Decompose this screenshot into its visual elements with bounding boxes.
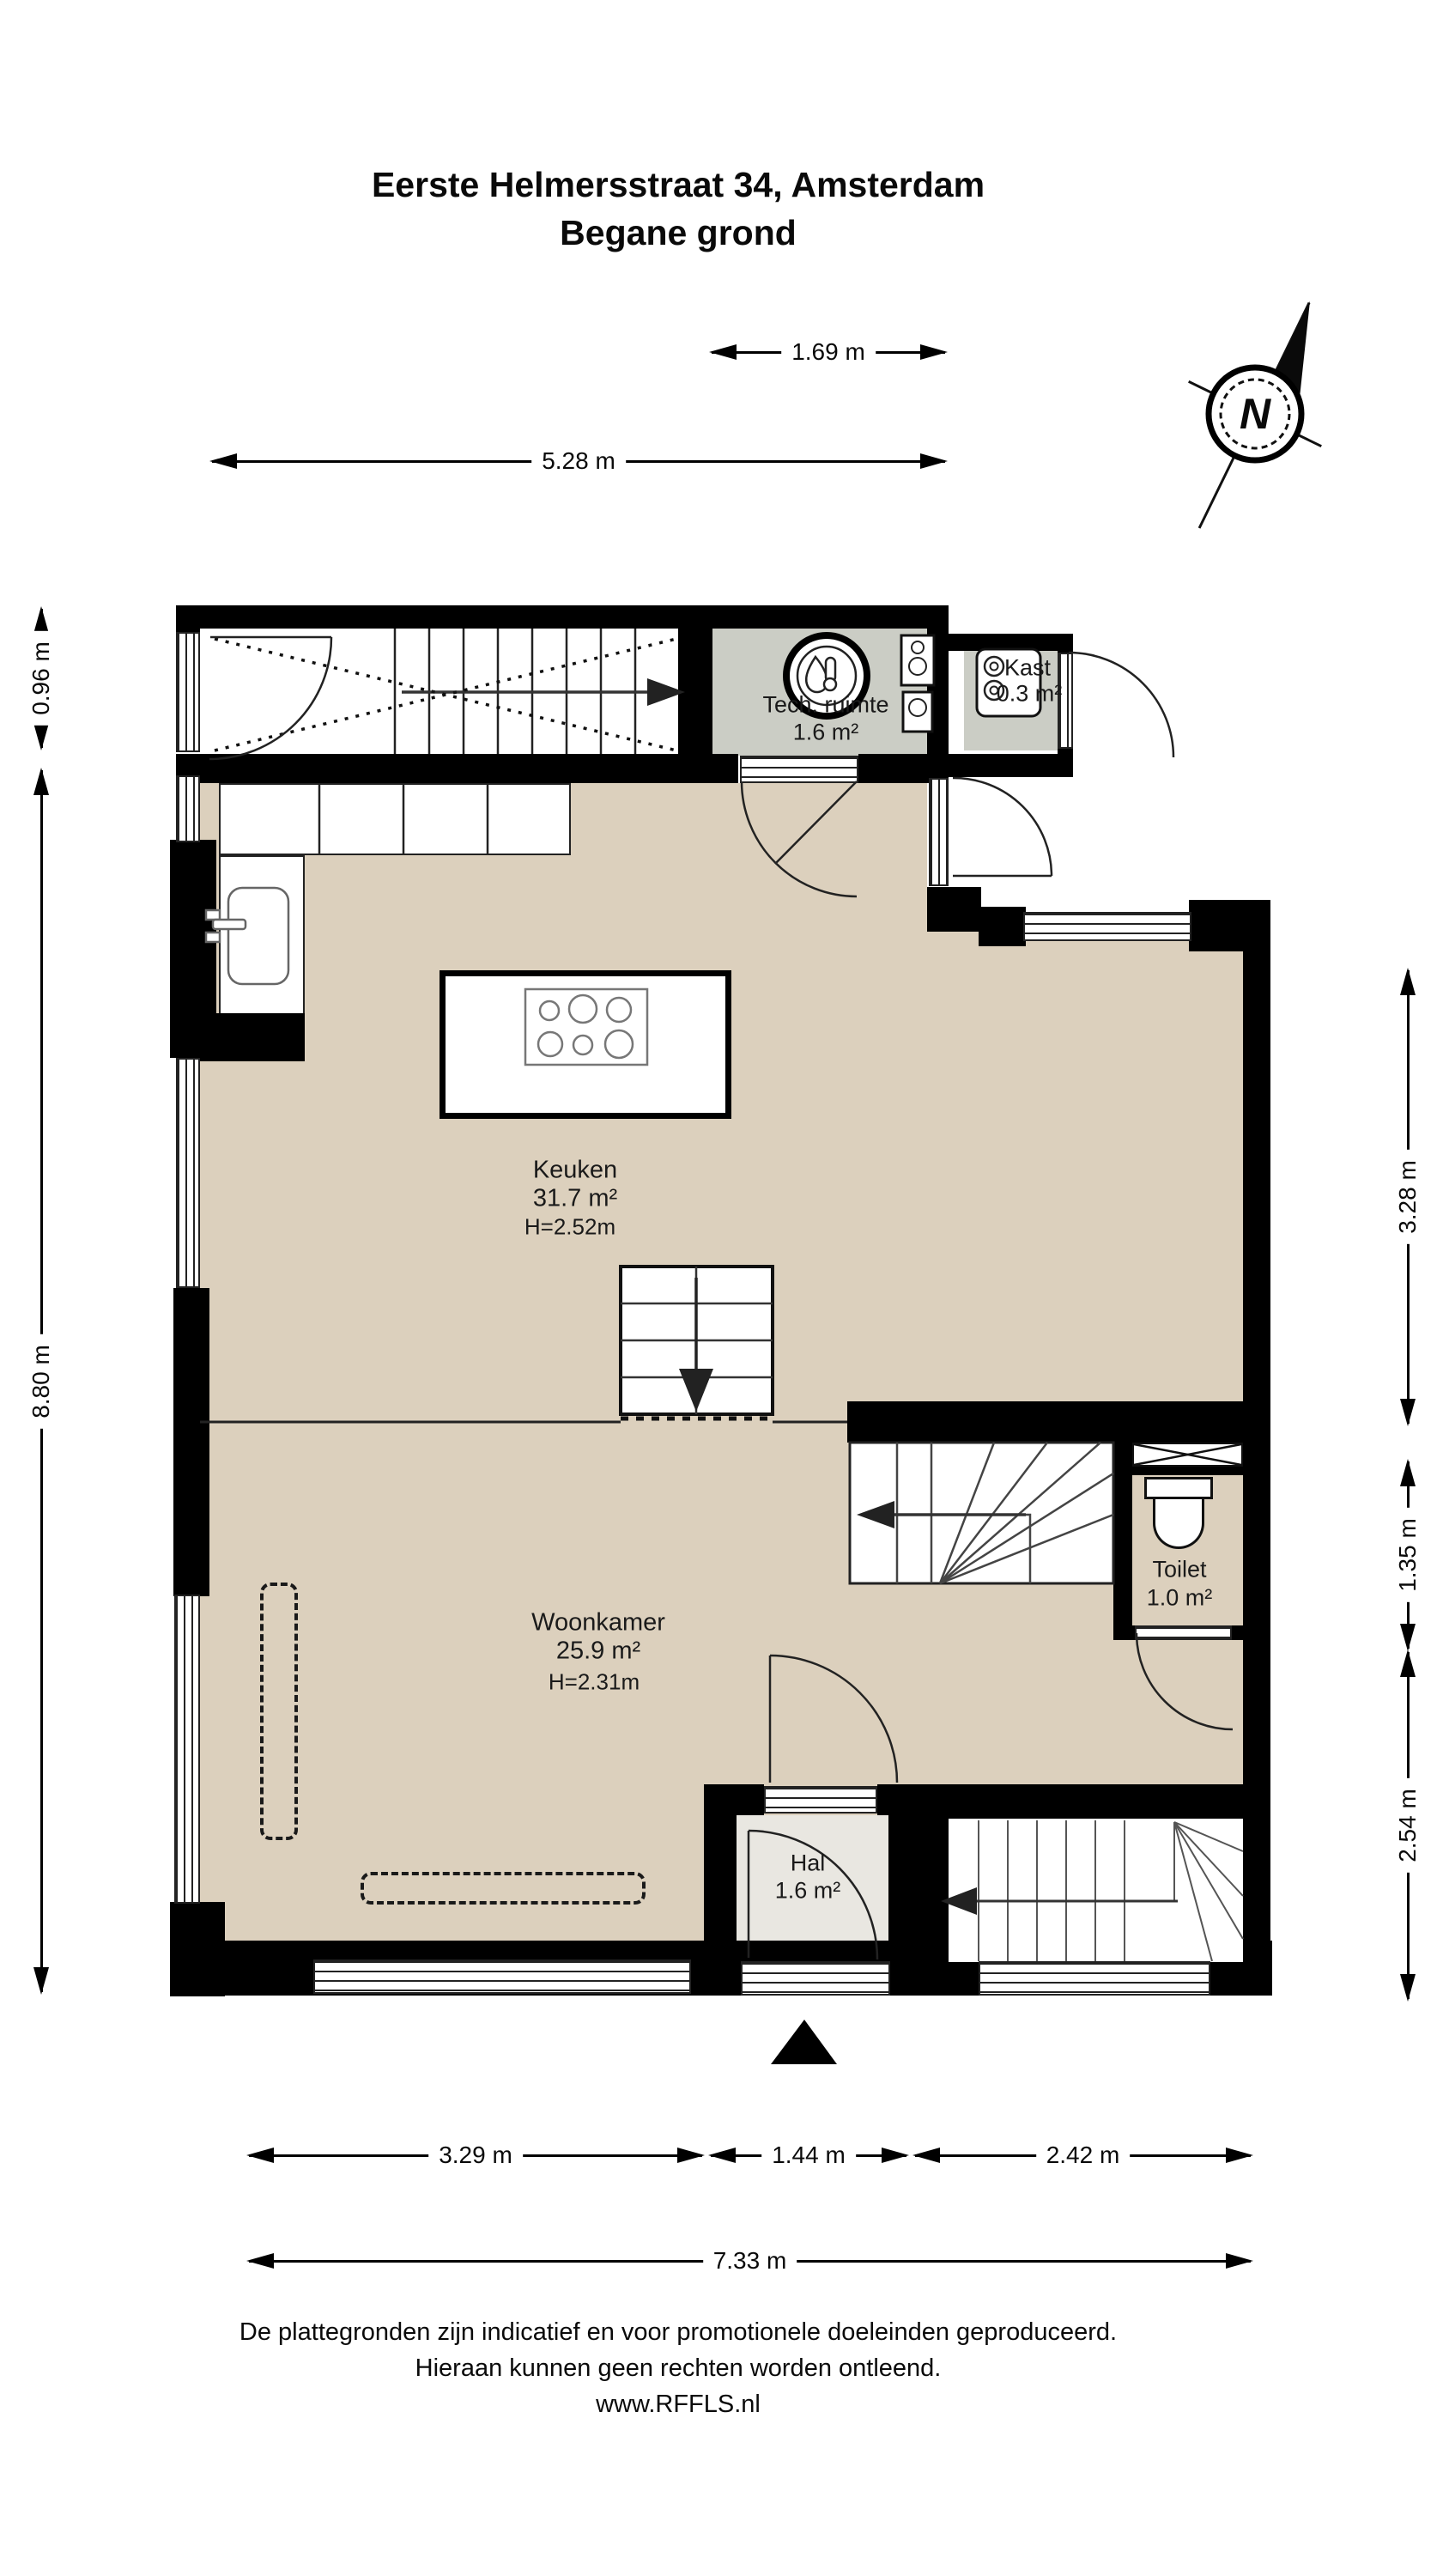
dimension-top-main: 5.28 m bbox=[210, 448, 947, 474]
tech-door-swing bbox=[742, 781, 857, 896]
page-subtitle: Begane grond bbox=[560, 213, 797, 253]
dimension-label: 8.80 m bbox=[26, 1334, 57, 1429]
dimension-top-small: 1.69 m bbox=[710, 339, 947, 365]
dimension-label: 1.69 m bbox=[781, 337, 876, 368]
room-divider-line bbox=[200, 1419, 847, 1422]
compass-north-label: N bbox=[1240, 390, 1271, 438]
hob bbox=[525, 989, 647, 1065]
dimension-right-upper: 3.28 m bbox=[1395, 969, 1421, 1425]
dimension-label: 2.42 m bbox=[1036, 2140, 1131, 2171]
dimension-bottom-left: 3.29 m bbox=[247, 2142, 704, 2168]
disclaimer-line-1: De plattegronden zijn indicatief en voor… bbox=[239, 2318, 1117, 2347]
room-label-tech-name: Tech. ruimte bbox=[762, 692, 888, 719]
dimension-label: 2.54 m bbox=[1392, 1778, 1423, 1873]
entrance-marker bbox=[771, 2020, 837, 2064]
dimension-left-small: 0.96 m bbox=[28, 607, 54, 750]
dimension-bottom-total: 7.33 m bbox=[247, 2248, 1252, 2274]
dimension-bottom-right: 2.42 m bbox=[913, 2142, 1252, 2168]
compass-rose: N bbox=[1166, 283, 1350, 550]
room-label-woonkamer-name: Woonkamer bbox=[531, 1609, 665, 1637]
room-label-woonkamer-area: 25.9 m² bbox=[556, 1637, 640, 1666]
dimension-bottom-mid: 1.44 m bbox=[709, 2142, 908, 2168]
floorplan-page: N Eerste Helmersstraat 34, Amsterdam Beg… bbox=[0, 0, 1449, 2576]
stairwell-arrow bbox=[941, 1887, 1178, 1915]
website-link: www.RFFLS.nl bbox=[596, 2391, 761, 2419]
room-label-keuken-area: 31.7 m² bbox=[533, 1185, 617, 1213]
dimension-label: 0.96 m bbox=[26, 631, 57, 726]
dimension-right-mid: 1.35 m bbox=[1395, 1460, 1421, 1650]
dimension-right-lower: 2.54 m bbox=[1395, 1650, 1421, 2001]
dimension-label: 7.33 m bbox=[703, 2245, 797, 2276]
room-label-hal-name: Hal bbox=[791, 1850, 826, 1877]
counter-dividers bbox=[319, 783, 488, 855]
hal-woonkamer-door-swing bbox=[770, 1656, 897, 1783]
disclaimer-line-2: Hieraan kunnen geen rechten worden ontle… bbox=[415, 2354, 942, 2383]
dimension-label: 3.29 m bbox=[428, 2140, 523, 2171]
sink bbox=[206, 888, 288, 984]
dimension-left-main: 8.80 m bbox=[28, 769, 54, 1994]
cellar-stairs bbox=[621, 1267, 773, 1414]
room-label-woonkamer-height: H=2.31m bbox=[549, 1669, 640, 1696]
room-label-kast-name: Kast bbox=[1004, 655, 1051, 682]
toilet-door-swing bbox=[1137, 1633, 1233, 1729]
dimension-label: 1.35 m bbox=[1392, 1508, 1423, 1602]
dimension-label: 1.44 m bbox=[761, 2140, 856, 2171]
room-label-toilet-name: Toilet bbox=[1152, 1557, 1206, 1583]
dimension-label: 3.28 m bbox=[1392, 1150, 1423, 1244]
room-label-keuken-name: Keuken bbox=[533, 1157, 617, 1185]
dimension-label: 5.28 m bbox=[531, 446, 626, 477]
room-label-toilet-area: 1.0 m² bbox=[1147, 1585, 1213, 1612]
entrance-door-swing bbox=[209, 637, 331, 759]
corridor-stair-arrow bbox=[402, 678, 685, 706]
room-label-hal-area: 1.6 m² bbox=[775, 1878, 841, 1905]
toilet-shelf-x bbox=[1134, 1444, 1241, 1465]
kast-door-swing bbox=[1069, 653, 1173, 757]
room-label-keuken-height: H=2.52m bbox=[524, 1214, 615, 1241]
room-label-kast-area: 0.3 m² bbox=[997, 681, 1063, 708]
room-label-tech-area: 1.6 m² bbox=[793, 720, 859, 746]
stairwell-treads bbox=[979, 1820, 1243, 1961]
page-title: Eerste Helmersstraat 34, Amsterdam bbox=[372, 165, 985, 205]
side-door-swing bbox=[953, 778, 1052, 876]
meter-icons bbox=[901, 635, 934, 732]
